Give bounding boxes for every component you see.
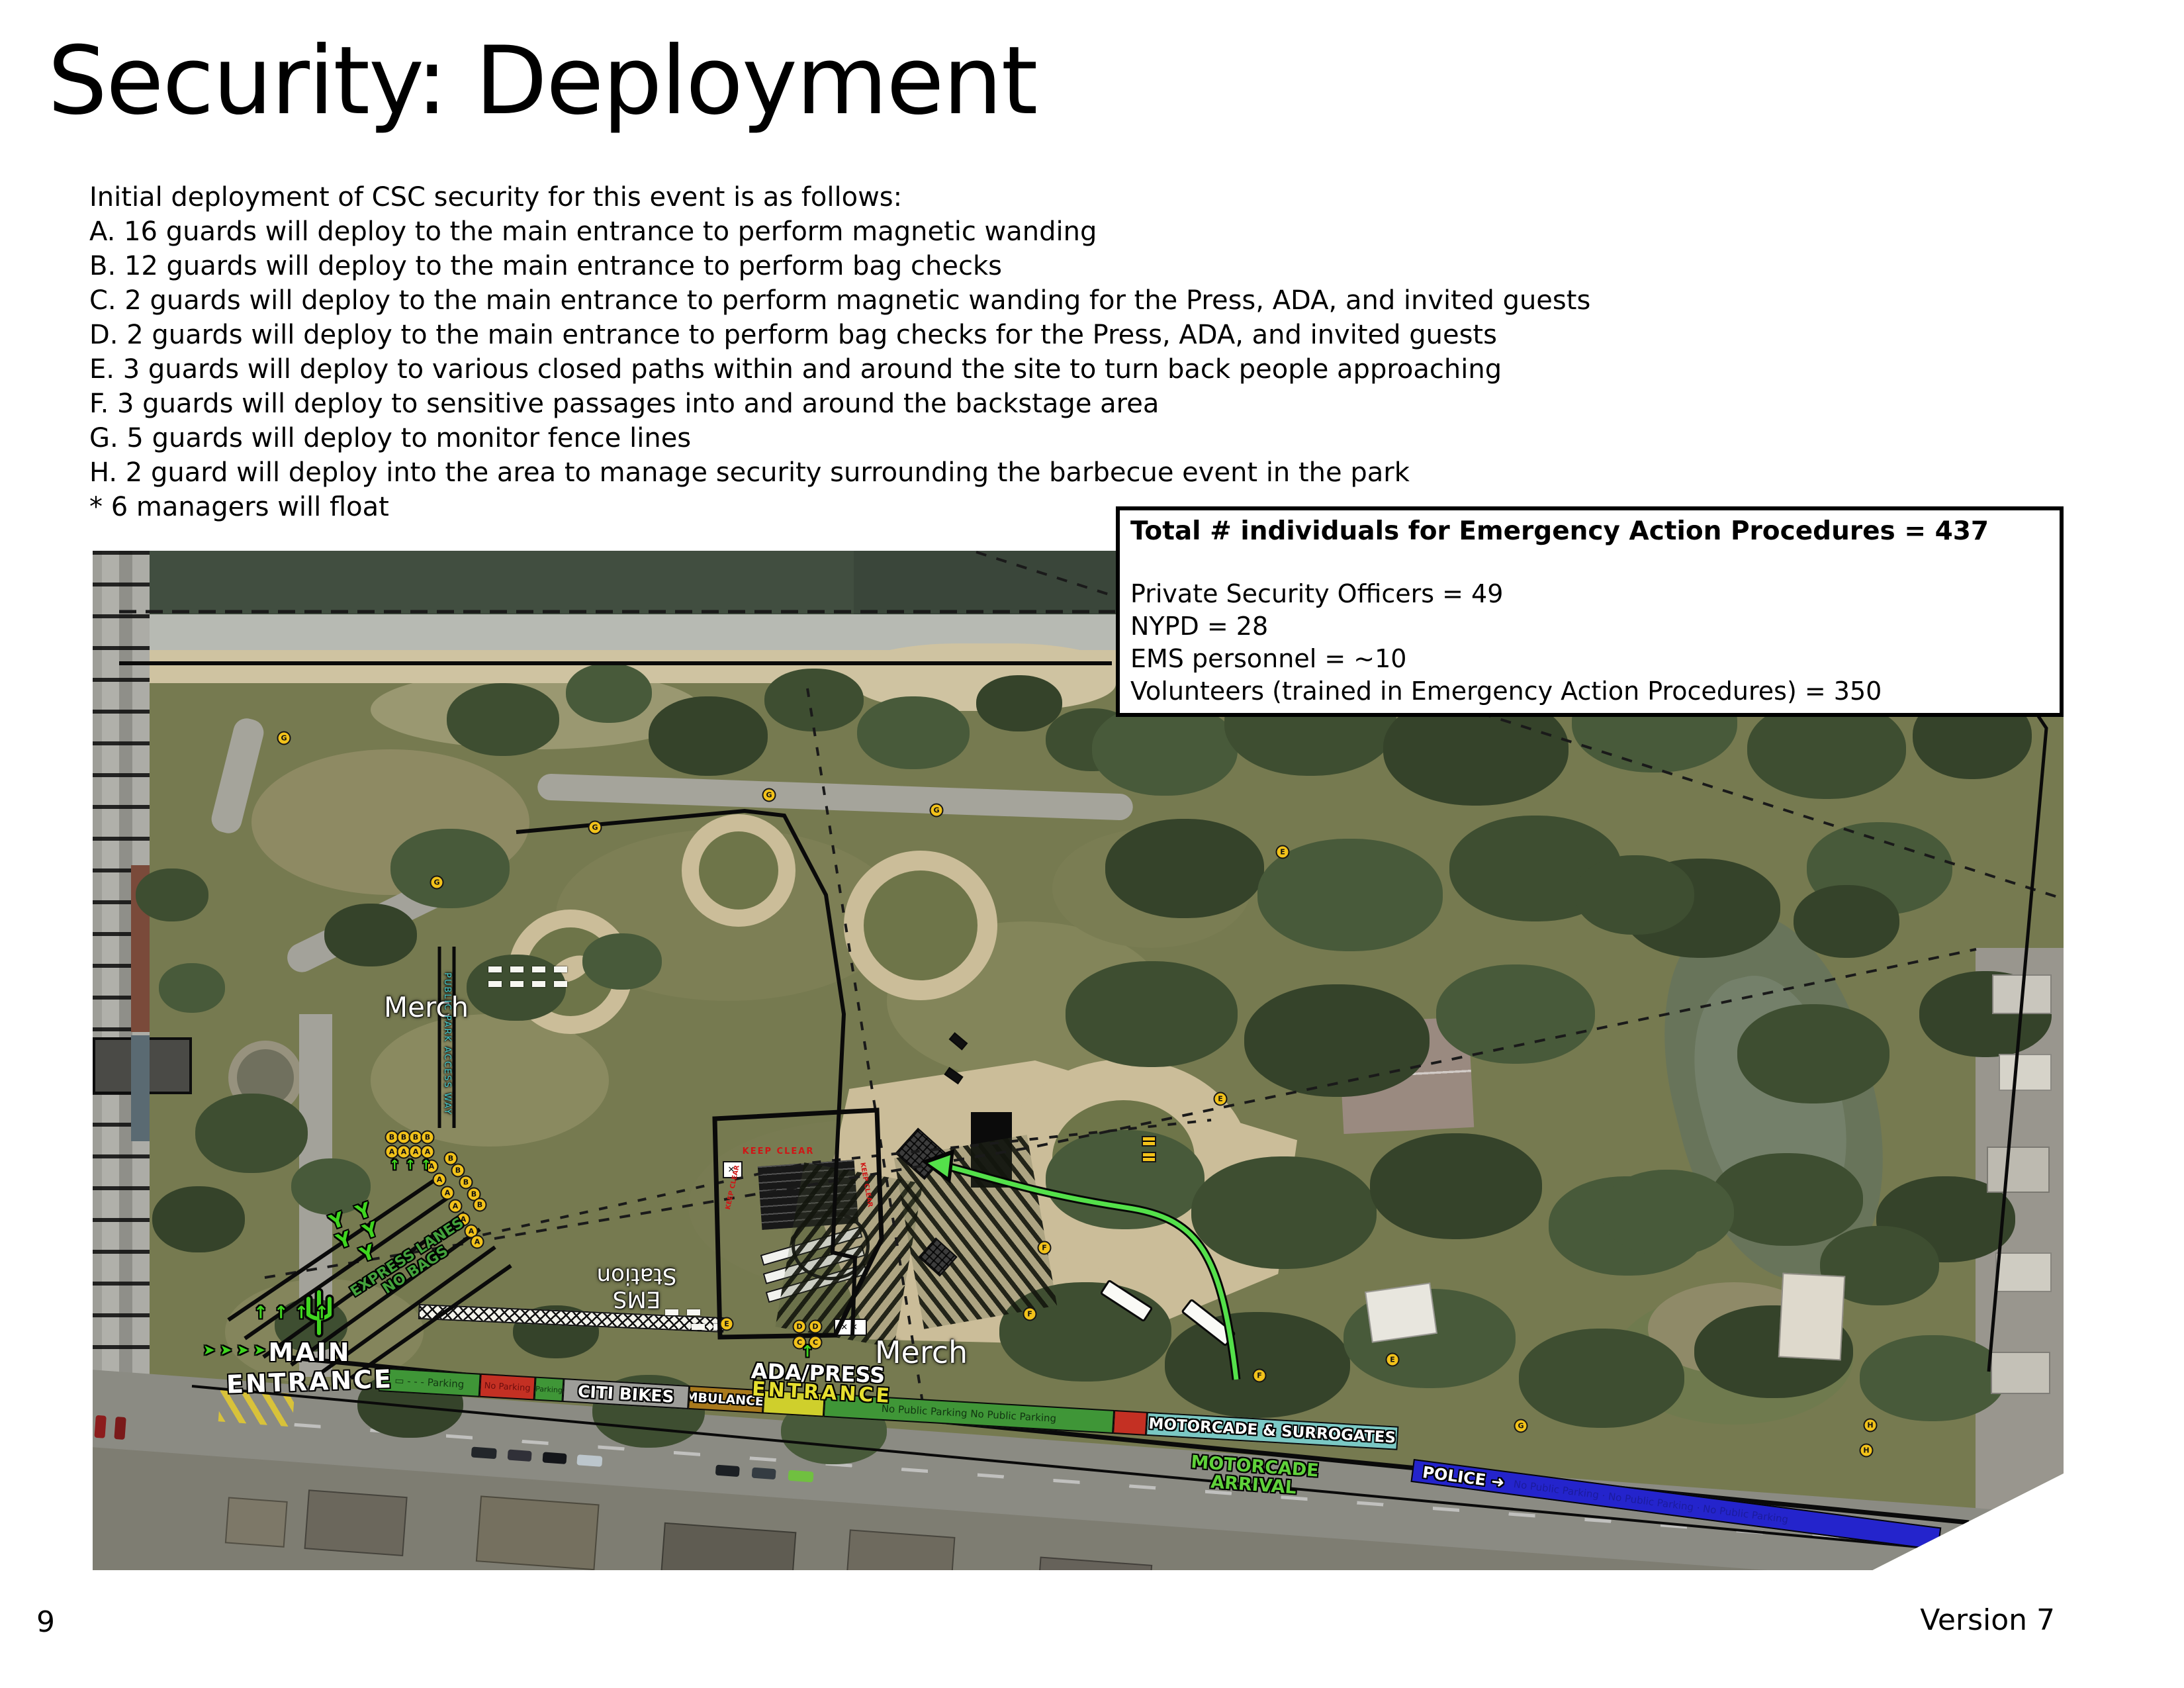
deployment-list: Initial deployment of CSC security for t… <box>89 180 1590 524</box>
guard-marker-G: G <box>588 821 602 835</box>
east-boundary-line <box>1985 637 2046 1372</box>
guard-marker-B: B <box>473 1198 487 1212</box>
guard-marker-E: E <box>720 1317 734 1331</box>
motorcade-route-outline <box>948 1166 1236 1380</box>
map-label-keep-clear: KEEP CLEAR <box>743 1147 815 1156</box>
stage-pen-outline <box>715 1110 882 1337</box>
guard-marker-D: D <box>793 1320 807 1334</box>
boundary-dashed-vertical <box>807 688 923 1407</box>
guard-marker-F: F <box>1253 1369 1267 1383</box>
map-label-main-entrance-1: MAIN <box>268 1340 351 1366</box>
guard-marker-H: H <box>1864 1419 1878 1432</box>
yellow-post-marker <box>1142 1152 1156 1162</box>
map-label-merch-north: Merch <box>384 993 469 1022</box>
map-label-line: ↑ <box>801 1344 814 1360</box>
deployment-item: G. 5 guards will deploy to monitor fence… <box>89 421 1590 455</box>
deployment-item: H. 2 guard will deploy into the area to … <box>89 455 1590 490</box>
map-label-main-entrance-2: ENTRANCE <box>226 1366 393 1398</box>
map-label-green-dash-arrows: ➤ ➤ ➤ ➤ <box>203 1344 266 1359</box>
map-label-line: ➤ ➤ ➤ ➤ <box>203 1344 266 1359</box>
guard-marker-G: G <box>762 788 776 802</box>
totals-line: NYPD = 28 <box>1130 610 2049 643</box>
deployment-item: E. 3 guards will deploy to various close… <box>89 352 1590 387</box>
deployment-item: F. 3 guards will deploy to sensitive pas… <box>89 387 1590 421</box>
strip-segment-no-parking-red-2 <box>1113 1410 1148 1436</box>
guard-marker-E: E <box>1386 1353 1400 1367</box>
guard-marker-E: E <box>1214 1092 1228 1106</box>
deployment-intro: Initial deployment of CSC security for t… <box>89 180 1590 214</box>
page-title: Security: Deployment <box>48 26 1036 136</box>
emergency-totals-box: Total # individuals for Emergency Action… <box>1116 506 2064 717</box>
totals-spacer <box>1130 547 2049 578</box>
totals-lines: Private Security Officers = 49NYPD = 28E… <box>1130 578 2049 708</box>
strip-segment-no-parking-red: No Parking <box>480 1374 536 1401</box>
guard-marker-G: G <box>930 804 944 818</box>
map-label-line: Station <box>597 1264 677 1287</box>
map-label-line: ↑ ↑ ↑ ↑ <box>253 1304 329 1322</box>
map-label-green-arrows-queue: ↑ ↑ ↑ <box>389 1158 432 1172</box>
map-label-line: KEEP CLEAR <box>743 1147 815 1156</box>
totals-line: Private Security Officers = 49 <box>1130 578 2049 610</box>
guard-marker-F: F <box>1023 1307 1037 1321</box>
site-fence-line <box>516 811 855 1335</box>
map-label-line: EMS <box>597 1287 677 1310</box>
guard-marker-B: B <box>421 1131 435 1145</box>
map-label-public-park-access-way: PUBLIC PARK ACCESS WAY <box>442 972 451 1115</box>
map-label-ems-station: EMSStation <box>597 1264 677 1311</box>
totals-line: EMS personnel = ~10 <box>1130 643 2049 675</box>
map-label-line: Merch <box>384 993 469 1022</box>
deployment-item: D. 2 guards will deploy to the main entr… <box>89 318 1590 352</box>
deployment-item: B. 12 guards will deploy to the main ent… <box>89 249 1590 283</box>
page-number: 9 <box>36 1605 55 1639</box>
guard-marker-G: G <box>277 731 291 745</box>
guard-marker-G: G <box>430 876 444 890</box>
yellow-post-marker <box>1142 1136 1156 1147</box>
map-label-green-arrows-entrance: ↑ ↑ ↑ ↑ <box>253 1304 329 1322</box>
guard-marker-F: F <box>1038 1241 1052 1255</box>
map-label-line: PUBLIC PARK ACCESS WAY <box>442 972 451 1115</box>
guard-marker-A: A <box>433 1173 447 1187</box>
guard-marker-A: A <box>449 1199 463 1213</box>
guard-marker-G: G <box>1514 1419 1528 1433</box>
map-label-line: ↑ ↑ ↑ <box>389 1158 432 1172</box>
guard-marker-H: H <box>1860 1444 1874 1458</box>
map-label-line: MAIN <box>268 1340 351 1366</box>
security-deployment-page: Security: Deployment Initial deployment … <box>0 0 2184 1688</box>
totals-line: Volunteers (trained in Emergency Action … <box>1130 675 2049 708</box>
boundary-dashed-long <box>265 949 1976 1278</box>
map-label-line: ENTRANCE <box>226 1366 393 1398</box>
deployment-item: C. 2 guards will deploy to the main entr… <box>89 283 1590 318</box>
totals-title: Total # individuals for Emergency Action… <box>1130 516 2049 547</box>
strip-segment-parking-green-2: Parking <box>535 1377 565 1402</box>
version-label: Version 7 <box>1920 1603 2055 1637</box>
guard-marker-E: E <box>1276 845 1290 859</box>
guard-marker-A: A <box>441 1186 455 1200</box>
guard-marker-D: D <box>809 1320 823 1334</box>
map-label-green-arrow-ada: ↑ <box>801 1344 814 1360</box>
map-label-merch-south: Merch <box>875 1337 968 1369</box>
deployment-item: A. 16 guards will deploy to the main ent… <box>89 214 1590 249</box>
map-label-line: Merch <box>875 1337 968 1369</box>
